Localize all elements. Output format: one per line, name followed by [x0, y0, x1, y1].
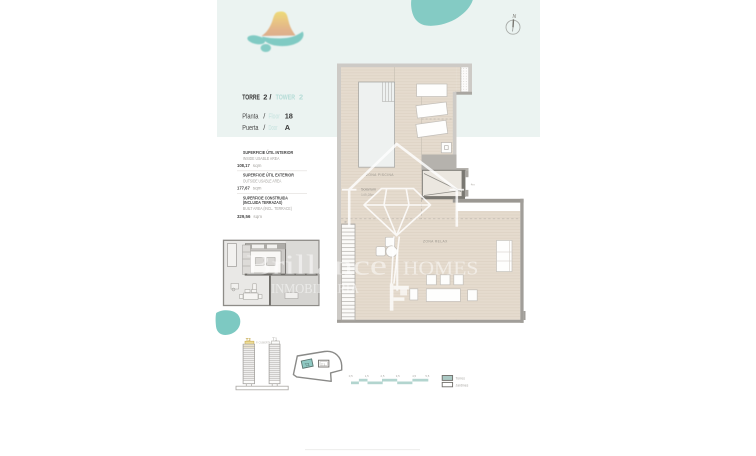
svg-text:INSIDE USABLE AREA: INSIDE USABLE AREA — [243, 156, 280, 161]
svg-text:Door: Door — [269, 123, 278, 132]
svg-text:ZONA RELAX: ZONA RELAX — [423, 240, 448, 244]
svg-text:T1: T1 — [321, 362, 326, 367]
svg-text:Jardines: Jardines — [456, 383, 469, 387]
svg-text:SUPERFICIE ÚTIL INTERIOR: SUPERFICIE ÚTIL INTERIOR — [243, 149, 294, 155]
svg-text:T1: T1 — [272, 336, 278, 341]
svg-text:Floor: Floor — [269, 112, 281, 121]
svg-text:Torres: Torres — [456, 377, 466, 381]
svg-text:OUTSIDE USABLE AREA: OUTSIDE USABLE AREA — [243, 179, 282, 184]
svg-text:P. CUBIERTA: P. CUBIERTA — [256, 342, 271, 345]
svg-text:177,67: 177,67 — [237, 185, 250, 191]
svg-text:5,5: 5,5 — [425, 374, 429, 378]
svg-text:TORRE: TORRE — [242, 93, 260, 102]
svg-text:329,56: 329,56 — [237, 214, 251, 220]
svg-text:4m: 4m — [471, 182, 476, 186]
svg-text:0,5: 0,5 — [349, 374, 353, 378]
svg-text:HOMES: HOMES — [403, 259, 479, 280]
svg-text:2,5: 2,5 — [381, 374, 385, 378]
svg-text:sqm: sqm — [253, 185, 262, 190]
svg-text:INMOBILIARIA: INMOBILIARIA — [271, 282, 360, 297]
svg-text:3,5: 3,5 — [396, 374, 400, 378]
svg-text:Puerta: Puerta — [242, 123, 259, 132]
svg-text:2: 2 — [299, 93, 303, 102]
svg-text:1,5: 1,5 — [365, 374, 369, 378]
svg-text:4,5: 4,5 — [412, 374, 416, 378]
svg-text:Solarium: Solarium — [361, 188, 376, 192]
svg-text:sqm: sqm — [253, 163, 262, 168]
svg-text:Planta: Planta — [242, 112, 259, 121]
svg-text:18: 18 — [285, 112, 293, 121]
svg-text:108,17: 108,17 — [237, 163, 250, 169]
svg-text:SUPERFICIE ÚTIL EXTERIOR: SUPERFICIE ÚTIL EXTERIOR — [243, 172, 295, 178]
svg-text:ZONA PISCINA: ZONA PISCINA — [366, 173, 394, 177]
svg-text:/: / — [269, 93, 271, 102]
svg-text:A: A — [285, 123, 291, 132]
svg-text:TOWER: TOWER — [276, 93, 296, 102]
svg-text:(INCLUIDA TERRAZAS): (INCLUIDA TERRAZAS) — [243, 200, 283, 205]
svg-text:BUILT AREA (INCL. TERRACE): BUILT AREA (INCL. TERRACE) — [243, 206, 292, 211]
svg-text:2: 2 — [263, 93, 267, 102]
svg-text:N: N — [513, 14, 517, 20]
svg-text:sqm: sqm — [253, 214, 262, 219]
svg-text:Brillance: Brillance — [246, 251, 387, 282]
